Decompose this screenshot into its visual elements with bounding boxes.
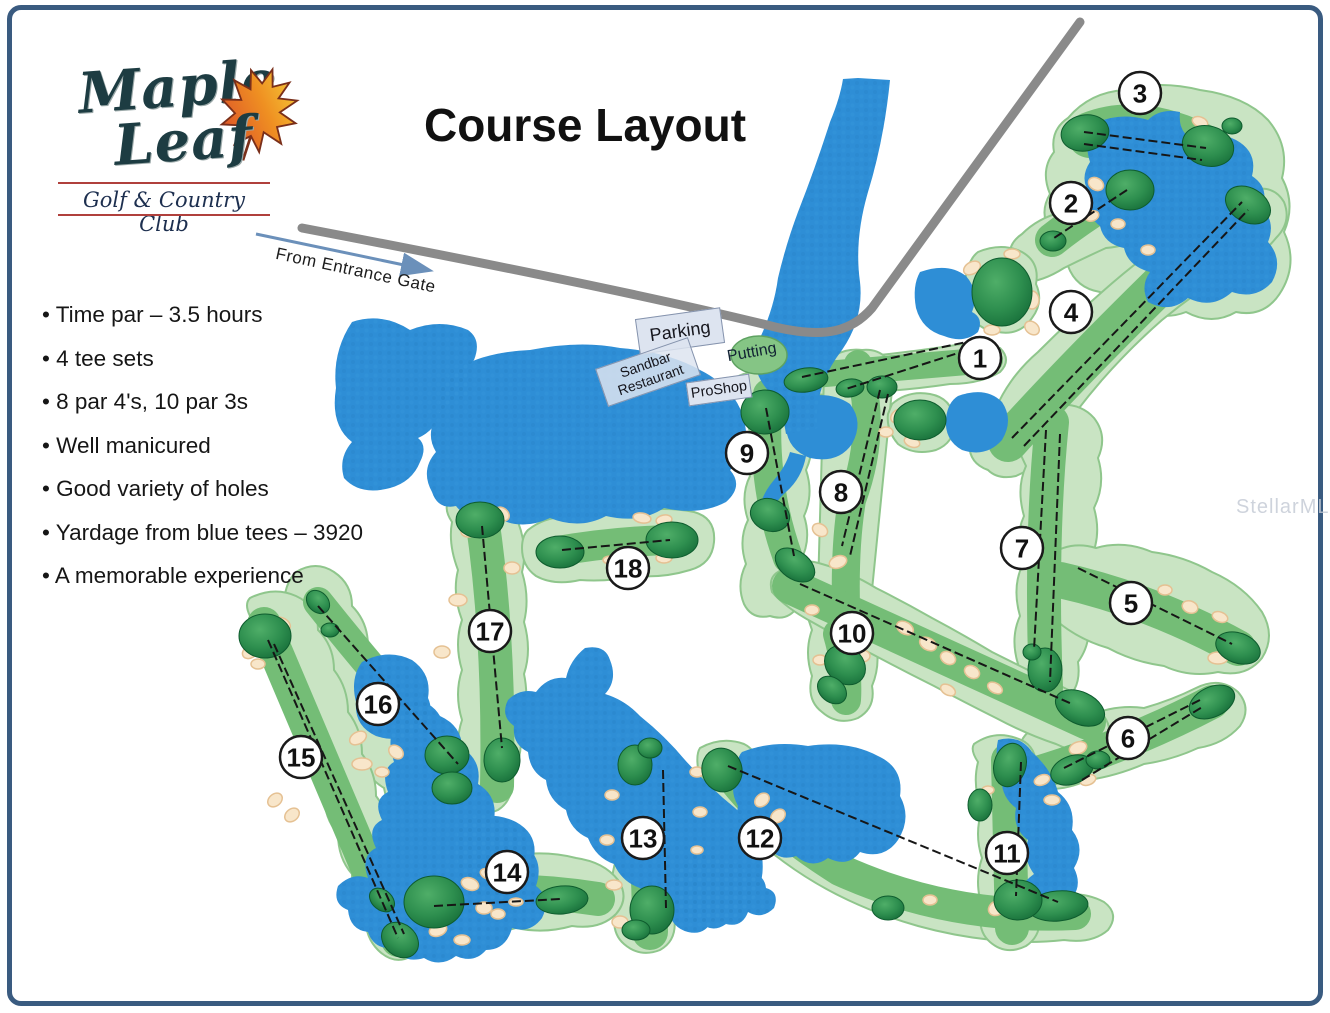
hole-marker-16: 16 (357, 683, 399, 725)
svg-text:11: 11 (993, 838, 1021, 868)
hole-marker-3: 3 (1119, 72, 1161, 114)
list-item: A memorable experience (42, 563, 442, 589)
svg-text:18: 18 (614, 553, 643, 583)
logo-rule-top (58, 182, 270, 184)
club-logo: Maple Leaf Golf & Country Club (52, 52, 302, 222)
svg-text:6: 6 (1121, 723, 1135, 753)
hole-marker-14: 14 (486, 851, 528, 893)
hole-marker-5: 5 (1110, 582, 1152, 624)
hole-marker-15: 15 (280, 736, 322, 778)
page-title: Course Layout (340, 98, 830, 152)
hole-marker-4: 4 (1050, 291, 1092, 333)
hole-marker-17: 17 (469, 610, 511, 652)
list-item: 8 par 4's, 10 par 3s (42, 389, 442, 415)
svg-text:15: 15 (287, 742, 316, 772)
list-item: Yardage from blue tees – 3920 (42, 520, 442, 546)
hole-marker-10: 10 (831, 612, 873, 654)
svg-text:13: 13 (629, 823, 658, 853)
hole-marker-2: 2 (1050, 182, 1092, 224)
svg-text:2: 2 (1064, 188, 1078, 218)
svg-text:5: 5 (1124, 588, 1138, 618)
hole-marker-9: 9 (726, 432, 768, 474)
svg-text:12: 12 (746, 823, 775, 853)
hole-marker-7: 7 (1001, 527, 1043, 569)
svg-text:14: 14 (493, 857, 522, 887)
hole-marker-8: 8 (820, 471, 862, 513)
svg-text:8: 8 (834, 477, 848, 507)
course-info-list: Time par – 3.5 hours 4 tee sets 8 par 4'… (42, 302, 442, 607)
watermark: StellarMLS (1236, 496, 1330, 519)
svg-text:9: 9 (740, 438, 754, 468)
svg-text:4: 4 (1064, 297, 1079, 327)
hole-marker-13: 13 (622, 817, 664, 859)
hole-marker-1: 1 (959, 337, 1001, 379)
list-item: Good variety of holes (42, 476, 442, 502)
svg-text:3: 3 (1133, 78, 1147, 108)
svg-text:17: 17 (476, 616, 505, 646)
logo-rule-bottom (58, 214, 270, 216)
hole-marker-6: 6 (1107, 717, 1149, 759)
svg-text:10: 10 (838, 618, 867, 648)
list-item: 4 tee sets (42, 346, 442, 372)
svg-text:1: 1 (973, 343, 987, 373)
svg-text:7: 7 (1015, 533, 1029, 563)
hole-marker-11: 11 (986, 832, 1028, 874)
list-item: Well manicured (42, 433, 442, 459)
hole-marker-12: 12 (739, 817, 781, 859)
hole-marker-18: 18 (607, 547, 649, 589)
logo-subtitle: Golf & Country Club (58, 188, 270, 236)
logo-word-leaf: Leaf (112, 103, 256, 179)
svg-text:16: 16 (364, 689, 393, 719)
list-item: Time par – 3.5 hours (42, 302, 442, 328)
